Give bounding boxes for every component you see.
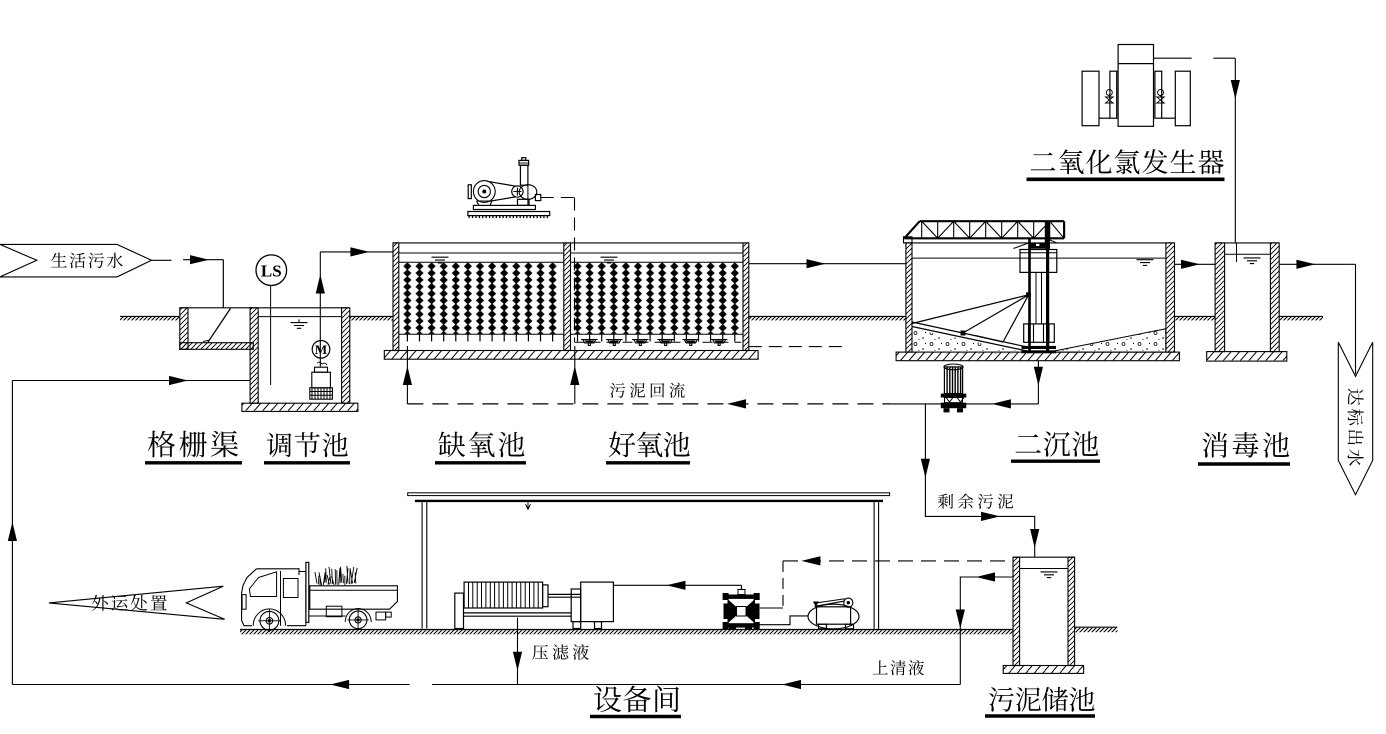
svg-text:LS: LS <box>261 261 282 280</box>
svg-text:M: M <box>315 342 327 357</box>
